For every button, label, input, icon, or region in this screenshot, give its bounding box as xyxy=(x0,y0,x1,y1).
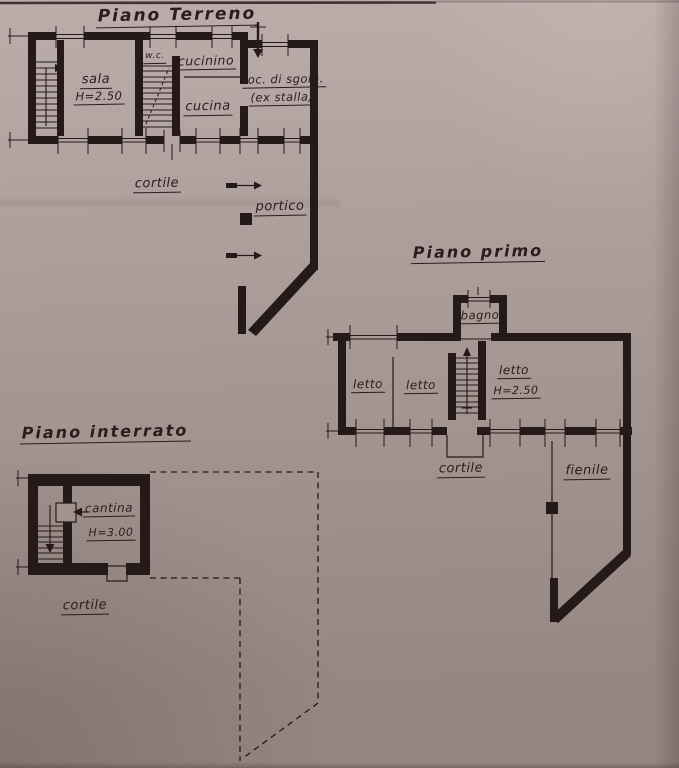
ground-central-staircase xyxy=(143,66,172,127)
room-label-cantina: cantina xyxy=(83,502,135,518)
dashed-footprint-outline xyxy=(150,472,318,761)
ground-left-wall xyxy=(8,28,36,148)
room-label-bagno: bagno xyxy=(459,309,502,324)
first-right-wall xyxy=(623,333,631,555)
room-label-cucina: cucina xyxy=(183,100,233,117)
entrance-arrow-upper-icon xyxy=(226,182,262,190)
room-height-sala: H=2.50 xyxy=(73,90,124,106)
basement-title: Piano interrato xyxy=(20,422,191,445)
room-label-letto-3: letto xyxy=(497,364,531,380)
room-label-letto-2: letto xyxy=(404,379,438,395)
room-label-wc: w.c. xyxy=(143,52,167,64)
scan-top-edge-line xyxy=(0,2,679,4)
first-bottom-wall xyxy=(338,427,632,435)
room-height-cantina: H=3.00 xyxy=(86,527,135,542)
first-bottom-windows xyxy=(356,419,620,457)
area-label-cortile-ground: cortile xyxy=(133,177,182,194)
basement-door xyxy=(56,503,76,522)
first-left-wall xyxy=(326,329,346,439)
area-label-fienile: fienile xyxy=(563,464,610,481)
fienile-pillar xyxy=(546,502,558,514)
cantina-walls xyxy=(16,470,150,575)
floorplan-linework xyxy=(0,0,679,768)
area-label-cortile-first: cortile xyxy=(437,462,486,479)
basement-stair-arrow xyxy=(46,505,55,553)
area-label-cortile-basement: cortile xyxy=(61,599,110,616)
room-label-cucinino: cucinino xyxy=(176,53,236,70)
portico-pillar xyxy=(240,213,252,225)
room-label-sala: sala xyxy=(80,73,113,90)
room-label-letto-1: letto xyxy=(351,378,385,394)
cantina-window-well xyxy=(107,566,127,581)
room-label-sgombero-line2: (ex stalla) xyxy=(248,90,315,106)
ground-floor-title: Piano Terreno xyxy=(96,5,259,29)
ground-bottom-wall xyxy=(28,136,318,144)
first-floor-drawing xyxy=(326,287,632,623)
first-door-landing xyxy=(447,435,483,457)
area-label-portico: portico xyxy=(253,200,306,217)
room-height-letto-3: H=2.50 xyxy=(491,385,540,400)
first-floor-title: Piano primo xyxy=(411,242,546,264)
scanned-floorplan-sheet: Piano Terreno sala H=2.50 w.c. cucinino … xyxy=(0,0,679,768)
entrance-arrow-lower-icon xyxy=(226,252,262,260)
portico-walls xyxy=(238,213,318,336)
room-label-sgombero-line1: loc. di sgom. xyxy=(242,72,326,88)
